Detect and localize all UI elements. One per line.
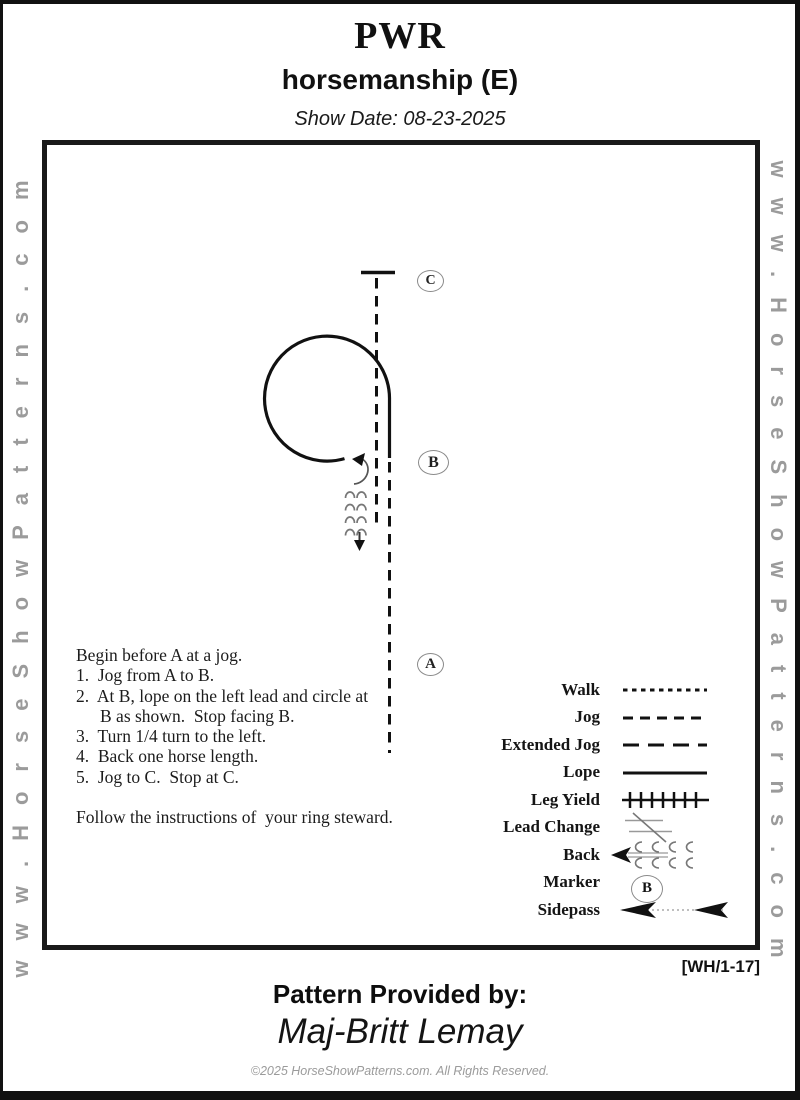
show-date: Show Date: 08-23-2025 — [0, 108, 800, 131]
legend-label: Marker — [460, 872, 600, 892]
provided-by-name: Maj-Britt Lemay — [0, 1012, 800, 1052]
marker-b-label: B — [428, 454, 439, 472]
copyright-note: ©2025 HorseShowPatterns.com. All Rights … — [0, 1064, 800, 1078]
legend-row-sidepass: Sidepass — [460, 896, 740, 924]
legend-label: Walk — [460, 680, 600, 700]
instruction-line: 5. Jog to C. Stop at C. — [76, 767, 476, 787]
leg-yield-symbol — [608, 786, 738, 814]
instruction-line: 2. At B, lope on the left lead and circl… — [76, 686, 476, 706]
ring-steward-note: Follow the instructions of your ring ste… — [76, 807, 476, 827]
instruction-line: Begin before A at a jog. — [76, 645, 476, 665]
legend-label: Leg Yield — [460, 790, 600, 810]
legend-row-jog: Jog — [460, 704, 740, 732]
legend-label: Lope — [460, 762, 600, 782]
marker-symbol-letter: B — [642, 880, 652, 897]
sidepass-symbol — [608, 896, 738, 924]
lead-change-symbol — [608, 814, 738, 842]
legend-row-leg-yield: Leg Yield — [460, 786, 740, 814]
page-border-bottom — [0, 1091, 800, 1100]
instruction-line: 3. Turn 1/4 turn to the left. — [76, 726, 476, 746]
legend-row-lead-change: Lead Change — [460, 814, 740, 842]
legend-label: Sidepass — [460, 900, 600, 920]
legend-row-lope: Lope — [460, 759, 740, 787]
lope-line-symbol — [608, 759, 738, 787]
legend-label: Extended Jog — [460, 735, 600, 755]
extended-jog-line-symbol — [608, 731, 738, 759]
watermark-left: www.HorseShowPatterns.com — [8, 139, 34, 999]
page-border-left — [0, 0, 3, 1100]
gait-legend: Walk Jog Extended Jog Lope Leg Yield — [460, 676, 740, 924]
marker-symbol: B — [608, 869, 738, 897]
jog-line-symbol — [608, 704, 738, 732]
legend-label: Lead Change — [460, 817, 600, 837]
pattern-code: [WH/1-17] — [682, 957, 760, 977]
legend-row-marker: Marker B — [460, 869, 740, 897]
marker-b: B — [418, 450, 449, 475]
legend-label: Jog — [460, 707, 600, 727]
page-border-right — [795, 0, 800, 1100]
walk-line-symbol — [608, 676, 738, 704]
provided-by-label: Pattern Provided by: — [0, 979, 800, 1010]
legend-row-back: Back — [460, 841, 740, 869]
legend-label: Back — [460, 845, 600, 865]
marker-c-label: C — [425, 273, 435, 289]
pattern-subtitle: horsemanship (E) — [0, 64, 800, 96]
pattern-title: PWR — [0, 14, 800, 58]
instruction-line: 4. Back one horse length. — [76, 746, 476, 766]
marker-c: C — [417, 270, 444, 292]
watermark-right: www.HorseShowPatterns.com — [765, 139, 791, 999]
page-border-top — [0, 0, 800, 4]
pattern-sheet: PWR horsemanship (E) Show Date: 08-23-20… — [0, 0, 800, 1100]
instruction-line-continuation: B as shown. Stop facing B. — [76, 706, 476, 726]
instruction-line: 1. Jog from A to B. — [76, 665, 476, 685]
back-symbol — [608, 841, 738, 869]
instructions: Begin before A at a jog. 1. Jog from A t… — [76, 645, 476, 827]
legend-row-walk: Walk — [460, 676, 740, 704]
legend-row-extended-jog: Extended Jog — [460, 731, 740, 759]
